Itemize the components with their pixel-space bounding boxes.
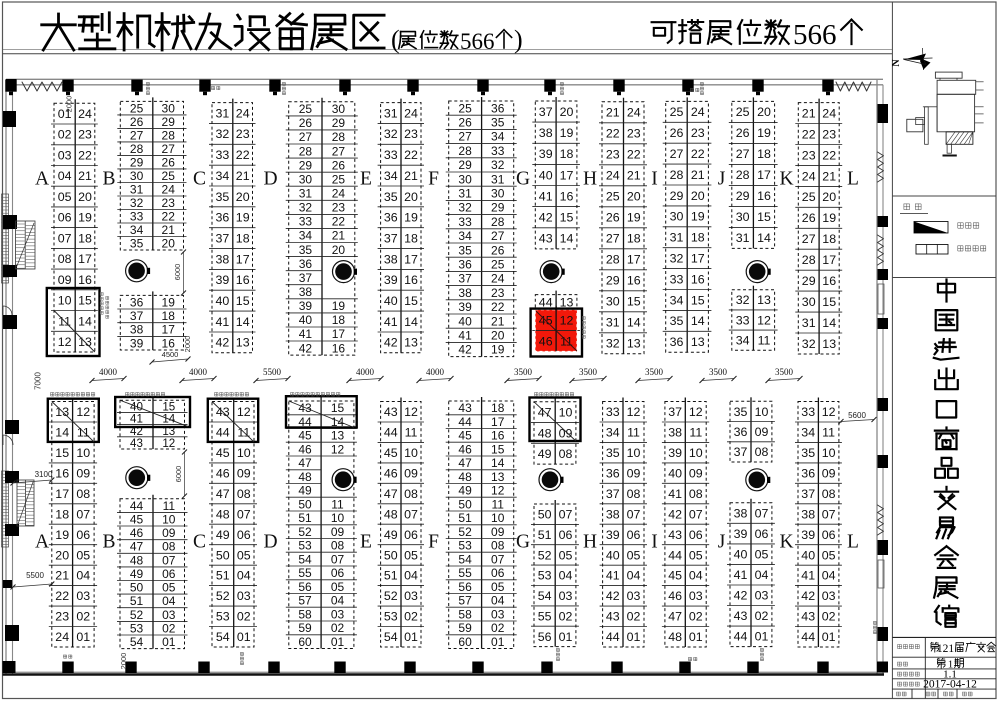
- svg-text:43: 43: [458, 401, 472, 415]
- svg-text:45: 45: [216, 446, 230, 460]
- svg-text:17: 17: [236, 252, 250, 266]
- svg-text:34: 34: [801, 426, 815, 440]
- svg-text:25: 25: [458, 101, 472, 115]
- svg-text:41: 41: [216, 315, 230, 329]
- svg-text:18: 18: [627, 232, 641, 246]
- svg-text:48: 48: [216, 507, 230, 521]
- svg-text:A: A: [35, 532, 49, 553]
- svg-text:36: 36: [299, 257, 313, 271]
- svg-text:04: 04: [491, 594, 505, 608]
- svg-text:34: 34: [130, 223, 144, 237]
- svg-text:07: 07: [237, 507, 251, 521]
- svg-text:10: 10: [822, 446, 836, 460]
- svg-text:58: 58: [458, 607, 472, 621]
- svg-text:40: 40: [539, 168, 553, 182]
- svg-text:32: 32: [130, 196, 144, 210]
- svg-text:30: 30: [130, 169, 144, 183]
- svg-text:01: 01: [162, 635, 176, 649]
- svg-text:24: 24: [236, 106, 250, 120]
- svg-text:05: 05: [627, 548, 641, 562]
- svg-text:04: 04: [404, 569, 418, 583]
- svg-text:39: 39: [384, 273, 398, 287]
- svg-text:E: E: [360, 169, 372, 190]
- svg-text:46: 46: [384, 466, 398, 480]
- svg-text:28: 28: [606, 253, 620, 267]
- svg-text:11: 11: [163, 499, 176, 513]
- svg-text:06: 06: [331, 566, 345, 580]
- svg-text:16: 16: [627, 274, 641, 288]
- svg-text:04: 04: [331, 594, 345, 608]
- svg-text:27: 27: [670, 147, 684, 161]
- svg-text:17: 17: [78, 252, 92, 266]
- svg-text:13: 13: [822, 337, 836, 351]
- svg-text:02: 02: [627, 610, 641, 624]
- svg-text:35: 35: [801, 446, 815, 460]
- svg-text:36: 36: [801, 466, 815, 480]
- svg-text:41: 41: [668, 487, 682, 501]
- svg-text:13: 13: [404, 336, 418, 350]
- svg-text:03: 03: [404, 589, 418, 603]
- svg-text:13: 13: [491, 470, 505, 484]
- svg-text:44: 44: [216, 426, 230, 440]
- svg-text:40: 40: [216, 294, 230, 308]
- svg-text:43: 43: [606, 610, 620, 624]
- svg-text:25: 25: [332, 172, 346, 186]
- svg-text:2000: 2000: [183, 336, 192, 353]
- svg-text:24: 24: [822, 106, 836, 120]
- svg-text:50: 50: [458, 497, 472, 511]
- svg-text:7000: 7000: [34, 372, 43, 390]
- svg-text:23: 23: [606, 148, 620, 162]
- svg-text:28: 28: [802, 253, 816, 267]
- svg-text:4000: 4000: [356, 367, 375, 377]
- svg-text:03: 03: [491, 607, 505, 621]
- svg-text:15: 15: [236, 294, 250, 308]
- svg-text:22: 22: [627, 148, 641, 162]
- svg-text:46: 46: [539, 334, 553, 348]
- svg-text:29: 29: [162, 115, 176, 129]
- svg-text:18: 18: [55, 507, 69, 521]
- svg-text:32: 32: [670, 252, 684, 266]
- svg-text:06: 06: [491, 566, 505, 580]
- svg-text:20: 20: [55, 548, 69, 562]
- svg-text:30: 30: [458, 172, 472, 186]
- svg-text:38: 38: [458, 286, 472, 300]
- svg-text:45: 45: [458, 429, 472, 443]
- svg-text:19: 19: [491, 343, 505, 357]
- svg-text:25: 25: [299, 102, 313, 116]
- svg-text:28: 28: [130, 142, 144, 156]
- svg-text:20: 20: [757, 105, 771, 119]
- svg-text:55: 55: [458, 566, 472, 580]
- svg-text:39: 39: [606, 528, 620, 542]
- svg-text:20: 20: [332, 243, 346, 257]
- svg-text:12: 12: [491, 484, 505, 498]
- svg-text:09: 09: [491, 525, 505, 539]
- svg-text:17: 17: [491, 415, 505, 429]
- svg-text:54: 54: [384, 630, 398, 644]
- svg-text:19: 19: [332, 299, 346, 313]
- svg-text:26: 26: [736, 126, 750, 140]
- svg-text:49: 49: [130, 567, 144, 581]
- svg-text:20: 20: [78, 190, 92, 204]
- svg-text:31: 31: [802, 316, 816, 330]
- svg-text:17: 17: [560, 168, 574, 182]
- svg-text:16: 16: [560, 189, 574, 203]
- svg-text:49: 49: [538, 447, 552, 461]
- svg-text:37: 37: [801, 487, 815, 501]
- svg-text:08: 08: [822, 487, 836, 501]
- svg-text:05: 05: [162, 581, 176, 595]
- svg-text:K: K: [779, 532, 793, 553]
- svg-text:43: 43: [384, 405, 398, 419]
- svg-text:01: 01: [404, 630, 418, 644]
- svg-text:32: 32: [384, 127, 398, 141]
- svg-text:18: 18: [491, 401, 505, 415]
- svg-text:02: 02: [237, 610, 251, 624]
- svg-text:26: 26: [162, 155, 176, 169]
- svg-text:23: 23: [162, 196, 176, 210]
- svg-text:34: 34: [299, 229, 313, 243]
- svg-text:26: 26: [606, 211, 620, 225]
- svg-text:12: 12: [58, 335, 72, 349]
- svg-text:10: 10: [689, 446, 703, 460]
- svg-text:46: 46: [298, 442, 312, 456]
- svg-text:27: 27: [162, 142, 176, 156]
- svg-text:26: 26: [299, 116, 313, 130]
- svg-text:23: 23: [627, 127, 641, 141]
- svg-text:47: 47: [298, 456, 312, 470]
- svg-text:21: 21: [236, 169, 250, 183]
- svg-text:36: 36: [734, 425, 748, 439]
- svg-text:53: 53: [130, 621, 144, 635]
- svg-text:28: 28: [670, 168, 684, 182]
- svg-text:22: 22: [606, 127, 620, 141]
- svg-text:54: 54: [216, 630, 230, 644]
- svg-text:09: 09: [822, 466, 836, 480]
- svg-text:25: 25: [491, 258, 505, 272]
- svg-text:33: 33: [299, 215, 313, 229]
- svg-text:19: 19: [236, 211, 250, 225]
- svg-text:10: 10: [162, 512, 176, 526]
- svg-text:39: 39: [130, 336, 144, 350]
- svg-text:14: 14: [691, 314, 705, 328]
- svg-text:06: 06: [237, 528, 251, 542]
- svg-text:40: 40: [606, 548, 620, 562]
- svg-text:22: 22: [491, 300, 505, 314]
- svg-text:19: 19: [560, 126, 574, 140]
- svg-text:566: 566: [460, 29, 495, 54]
- svg-text:24: 24: [691, 105, 705, 119]
- svg-text:19: 19: [757, 126, 771, 140]
- svg-text:46: 46: [458, 442, 472, 456]
- svg-text:08: 08: [76, 487, 90, 501]
- svg-text:06: 06: [822, 528, 836, 542]
- svg-text:27: 27: [299, 130, 313, 144]
- svg-text:03: 03: [559, 589, 573, 603]
- svg-text:05: 05: [237, 548, 251, 562]
- svg-text:21: 21: [491, 314, 505, 328]
- svg-text:21: 21: [606, 106, 620, 120]
- svg-text:08: 08: [331, 539, 345, 553]
- svg-text:53: 53: [384, 610, 398, 624]
- svg-text:01: 01: [491, 635, 505, 649]
- svg-text:18: 18: [162, 309, 176, 323]
- svg-text:30: 30: [332, 102, 346, 116]
- svg-text:05: 05: [58, 190, 72, 204]
- svg-text:28: 28: [491, 215, 505, 229]
- svg-text:37: 37: [384, 232, 398, 246]
- svg-text:121: 121: [937, 643, 955, 655]
- svg-text:19: 19: [404, 211, 418, 225]
- svg-text:59: 59: [458, 621, 472, 635]
- svg-text:L: L: [847, 532, 859, 553]
- svg-text:46: 46: [130, 526, 144, 540]
- svg-text:28: 28: [332, 130, 346, 144]
- svg-text:42: 42: [384, 336, 398, 350]
- svg-text:09: 09: [627, 466, 641, 480]
- svg-text:31: 31: [458, 187, 472, 201]
- svg-text:01: 01: [58, 107, 72, 121]
- svg-text:44: 44: [606, 630, 620, 644]
- svg-text:J: J: [718, 169, 726, 190]
- svg-text:39: 39: [458, 300, 472, 314]
- svg-text:25: 25: [670, 105, 684, 119]
- svg-text:05: 05: [491, 580, 505, 594]
- svg-text:43: 43: [539, 232, 553, 246]
- svg-text:37: 37: [734, 445, 748, 459]
- svg-text:(: (: [391, 25, 400, 54]
- svg-text:5500: 5500: [26, 571, 44, 580]
- svg-text:40: 40: [299, 313, 313, 327]
- svg-text:08: 08: [689, 487, 703, 501]
- svg-text:23: 23: [491, 286, 505, 300]
- svg-text:B: B: [102, 532, 115, 553]
- svg-text:15: 15: [404, 294, 418, 308]
- svg-text:26: 26: [802, 211, 816, 225]
- svg-text:11: 11: [331, 497, 344, 511]
- svg-text:58: 58: [298, 607, 312, 621]
- svg-text:C: C: [193, 169, 206, 190]
- svg-text:15: 15: [691, 293, 705, 307]
- svg-text:06: 06: [404, 528, 418, 542]
- svg-text:35: 35: [734, 405, 748, 419]
- svg-text:15: 15: [560, 211, 574, 225]
- svg-text:3500: 3500: [645, 367, 664, 377]
- svg-text:35: 35: [299, 243, 313, 257]
- svg-text:26: 26: [491, 243, 505, 257]
- svg-text:13: 13: [627, 337, 641, 351]
- svg-text:35: 35: [216, 190, 230, 204]
- svg-text:34: 34: [458, 229, 472, 243]
- svg-text:07: 07: [58, 231, 72, 245]
- svg-text:27: 27: [736, 147, 750, 161]
- svg-text:14: 14: [757, 231, 771, 245]
- svg-text:40: 40: [801, 548, 815, 562]
- svg-text:23: 23: [822, 127, 836, 141]
- svg-text:N: N: [891, 59, 902, 67]
- svg-text:03: 03: [822, 589, 836, 603]
- svg-text:13: 13: [560, 296, 574, 310]
- svg-text:30: 30: [736, 210, 750, 224]
- svg-text:29: 29: [802, 274, 816, 288]
- svg-text:20: 20: [404, 190, 418, 204]
- svg-text:35: 35: [384, 190, 398, 204]
- svg-text:44: 44: [539, 296, 553, 310]
- svg-text:36: 36: [384, 211, 398, 225]
- svg-text:): ): [514, 25, 523, 54]
- svg-text:30: 30: [162, 101, 176, 115]
- svg-text:22: 22: [55, 589, 69, 603]
- svg-text:38: 38: [130, 323, 144, 337]
- svg-text:12: 12: [404, 405, 418, 419]
- svg-text:19: 19: [162, 295, 176, 309]
- svg-text:10: 10: [237, 446, 251, 460]
- svg-text:B: B: [102, 169, 115, 190]
- svg-text:20: 20: [822, 190, 836, 204]
- svg-text:14: 14: [404, 315, 418, 329]
- svg-text:21: 21: [822, 169, 836, 183]
- svg-text:26: 26: [130, 115, 144, 129]
- svg-text:36: 36: [670, 335, 684, 349]
- svg-text:27: 27: [130, 128, 144, 142]
- svg-text:06: 06: [76, 528, 90, 542]
- svg-text:36: 36: [491, 101, 505, 115]
- svg-text:50: 50: [130, 581, 144, 595]
- svg-text:15: 15: [331, 401, 345, 415]
- svg-text:55: 55: [538, 609, 552, 623]
- svg-text:04: 04: [559, 569, 573, 583]
- svg-text:54: 54: [538, 589, 552, 603]
- svg-text:G: G: [516, 532, 530, 553]
- svg-text:16: 16: [757, 189, 771, 203]
- svg-text:56: 56: [298, 580, 312, 594]
- svg-text:37: 37: [216, 232, 230, 246]
- svg-text:38: 38: [539, 126, 553, 140]
- svg-text:08: 08: [491, 539, 505, 553]
- svg-text:37: 37: [299, 271, 313, 285]
- svg-text:09: 09: [76, 466, 90, 480]
- svg-text:32: 32: [299, 201, 313, 215]
- svg-text:17: 17: [757, 168, 771, 182]
- svg-text:49: 49: [384, 528, 398, 542]
- svg-text:13: 13: [691, 335, 705, 349]
- svg-text:24: 24: [332, 187, 346, 201]
- svg-text:49: 49: [298, 484, 312, 498]
- svg-text:22: 22: [822, 148, 836, 162]
- svg-text:22: 22: [78, 149, 92, 163]
- svg-text:06: 06: [627, 528, 641, 542]
- svg-text:49: 49: [458, 484, 472, 498]
- svg-text:43: 43: [734, 609, 748, 623]
- svg-text:34: 34: [736, 334, 750, 348]
- svg-text:04: 04: [76, 569, 90, 583]
- svg-text:39: 39: [216, 273, 230, 287]
- svg-text:3500: 3500: [514, 367, 533, 377]
- svg-text:01: 01: [627, 630, 641, 644]
- svg-text:51: 51: [384, 569, 398, 583]
- svg-text:20: 20: [236, 190, 250, 204]
- svg-text:15: 15: [162, 400, 175, 413]
- svg-text:56: 56: [538, 630, 552, 644]
- svg-text:41: 41: [539, 189, 553, 203]
- svg-text:15: 15: [78, 294, 92, 308]
- svg-text:4500: 4500: [162, 350, 179, 359]
- svg-text:12: 12: [76, 405, 90, 419]
- svg-text:E: E: [360, 532, 372, 553]
- svg-text:48: 48: [538, 426, 552, 440]
- svg-text:17: 17: [627, 253, 641, 267]
- svg-text:17: 17: [55, 487, 69, 501]
- svg-text:29: 29: [736, 189, 750, 203]
- svg-text:07: 07: [822, 507, 836, 521]
- svg-text:07: 07: [689, 507, 703, 521]
- svg-text:01: 01: [331, 635, 345, 649]
- svg-text:19: 19: [78, 211, 92, 225]
- svg-text:01: 01: [822, 630, 836, 644]
- svg-text:21: 21: [627, 169, 641, 183]
- svg-text:31: 31: [216, 106, 230, 120]
- svg-text:54: 54: [298, 552, 312, 566]
- svg-text:33: 33: [606, 405, 620, 419]
- svg-text:39: 39: [801, 528, 815, 542]
- svg-text:22: 22: [162, 209, 176, 223]
- svg-text:39: 39: [734, 527, 748, 541]
- svg-text:53: 53: [538, 569, 552, 583]
- svg-text:23: 23: [55, 610, 69, 624]
- svg-text:33: 33: [736, 313, 750, 327]
- svg-text:32: 32: [736, 293, 750, 307]
- svg-text:44: 44: [458, 415, 472, 429]
- svg-text:07: 07: [627, 507, 641, 521]
- svg-text:52: 52: [130, 608, 144, 622]
- svg-text:05: 05: [404, 548, 418, 562]
- svg-text:42: 42: [668, 507, 682, 521]
- svg-text:03: 03: [627, 589, 641, 603]
- svg-text:50: 50: [538, 508, 552, 522]
- svg-text:39: 39: [668, 446, 682, 460]
- svg-text:09: 09: [404, 466, 418, 480]
- svg-text:3500: 3500: [709, 367, 728, 377]
- svg-text:27: 27: [458, 130, 472, 144]
- svg-text:38: 38: [668, 426, 682, 440]
- svg-text:37: 37: [458, 272, 472, 286]
- svg-text:09: 09: [689, 466, 703, 480]
- svg-text:24: 24: [627, 106, 641, 120]
- svg-text:04: 04: [689, 569, 703, 583]
- svg-text:11: 11: [405, 426, 418, 440]
- svg-text:46: 46: [216, 466, 230, 480]
- svg-text:28: 28: [162, 128, 176, 142]
- svg-text:51: 51: [216, 569, 230, 583]
- svg-text:14: 14: [236, 315, 250, 329]
- svg-text:3100: 3100: [35, 470, 53, 479]
- svg-text:07: 07: [162, 553, 176, 567]
- svg-text:10: 10: [559, 406, 573, 420]
- svg-text:J: J: [718, 532, 726, 553]
- svg-text:39: 39: [299, 299, 313, 313]
- svg-text:13: 13: [331, 429, 345, 443]
- svg-text:14: 14: [78, 314, 92, 328]
- svg-text:04: 04: [755, 568, 769, 582]
- svg-text:25: 25: [162, 169, 176, 183]
- svg-text:52: 52: [298, 525, 312, 539]
- svg-text:36: 36: [458, 258, 472, 272]
- svg-text:28: 28: [299, 144, 313, 158]
- svg-text:21: 21: [332, 229, 346, 243]
- svg-text:05: 05: [331, 580, 345, 594]
- svg-text:05: 05: [76, 548, 90, 562]
